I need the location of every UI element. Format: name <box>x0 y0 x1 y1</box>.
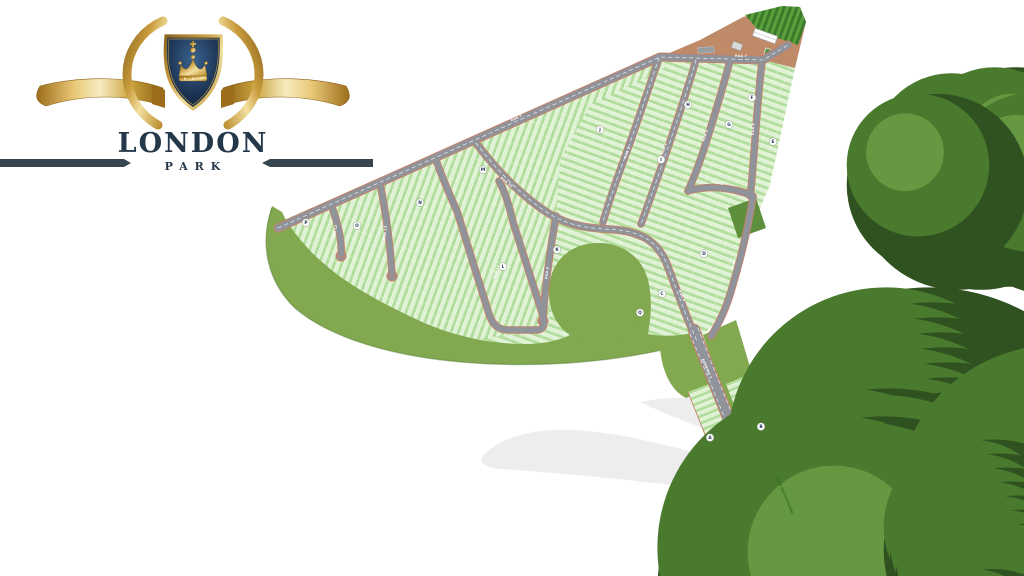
street-label: RUA 7 <box>735 54 747 58</box>
block-label: J <box>598 127 601 133</box>
block-label: F <box>751 95 754 101</box>
block-label: G <box>727 122 731 128</box>
brand-title: LONDON <box>118 128 269 159</box>
block-label: N <box>418 200 422 206</box>
block-label: M <box>481 167 485 173</box>
street-label: RUA 7 <box>373 166 386 175</box>
central-park <box>549 243 649 343</box>
site-map: RUA 7RUA 7RUA 7RUA 12RUA 13RUA 11RUA 10R… <box>266 6 1024 576</box>
block-label: O <box>355 223 359 229</box>
block-label: E <box>772 139 775 145</box>
crest-shield <box>165 36 221 109</box>
block-label: B <box>759 424 762 430</box>
block-label: C <box>660 291 663 297</box>
title-bar-right <box>262 159 373 167</box>
block-label: Q <box>638 310 642 316</box>
logo: LONDON PARK <box>0 21 373 173</box>
block-label: D <box>702 251 706 257</box>
block-label: H <box>686 102 690 108</box>
amenity-trees <box>847 67 1024 295</box>
page-canvas: RUA 7RUA 7RUA 7RUA 12RUA 13RUA 11RUA 10R… <box>0 0 1024 576</box>
brand-subtitle: PARK <box>165 160 228 173</box>
title-bar-left <box>0 159 131 167</box>
block-label: P <box>304 220 307 226</box>
block-label: L <box>502 264 505 270</box>
